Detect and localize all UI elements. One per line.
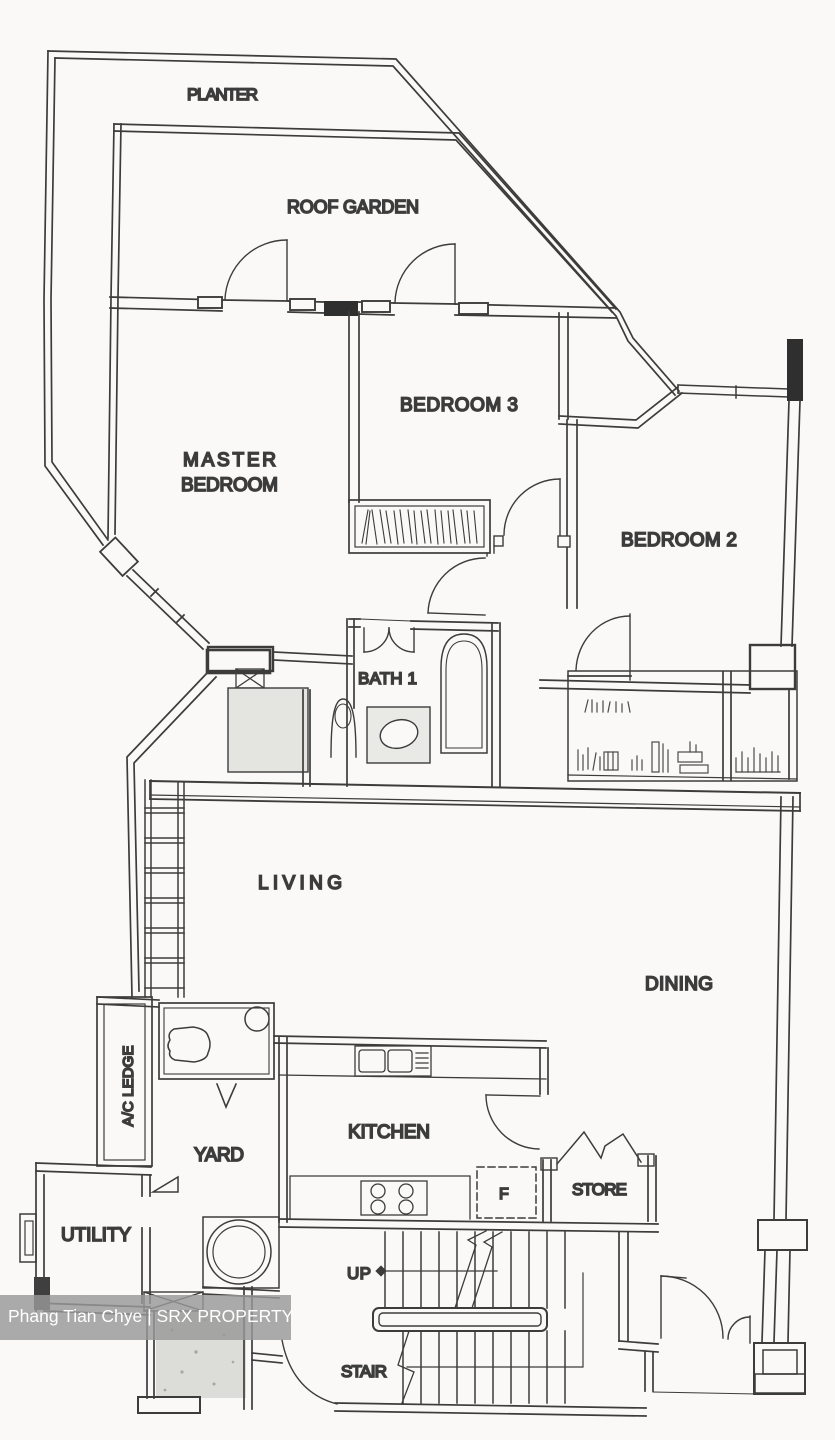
svg-text:BEDROOM: BEDROOM [181, 475, 278, 496]
svg-text:BEDROOM 3: BEDROOM 3 [400, 395, 518, 416]
svg-text:DINING: DINING [645, 974, 713, 995]
svg-text:YARD: YARD [194, 1145, 244, 1166]
svg-text:BATH 1: BATH 1 [358, 669, 417, 688]
svg-text:KITCHEN: KITCHEN [348, 1122, 430, 1143]
svg-text:STORE: STORE [572, 1180, 627, 1199]
svg-text:BEDROOM 2: BEDROOM 2 [621, 530, 737, 551]
svg-text:LIVING: LIVING [258, 873, 342, 894]
svg-text:STAIR: STAIR [341, 1362, 387, 1381]
svg-text:ROOF GARDEN: ROOF GARDEN [287, 197, 419, 217]
svg-text:UP: UP [347, 1264, 371, 1283]
svg-text:F: F [499, 1186, 509, 1203]
svg-text:A/C LEDGE: A/C LEDGE [120, 1046, 137, 1127]
svg-text:UTILITY: UTILITY [61, 1225, 131, 1246]
svg-text:PLANTER: PLANTER [187, 85, 258, 104]
svg-text:MASTER: MASTER [183, 450, 276, 471]
